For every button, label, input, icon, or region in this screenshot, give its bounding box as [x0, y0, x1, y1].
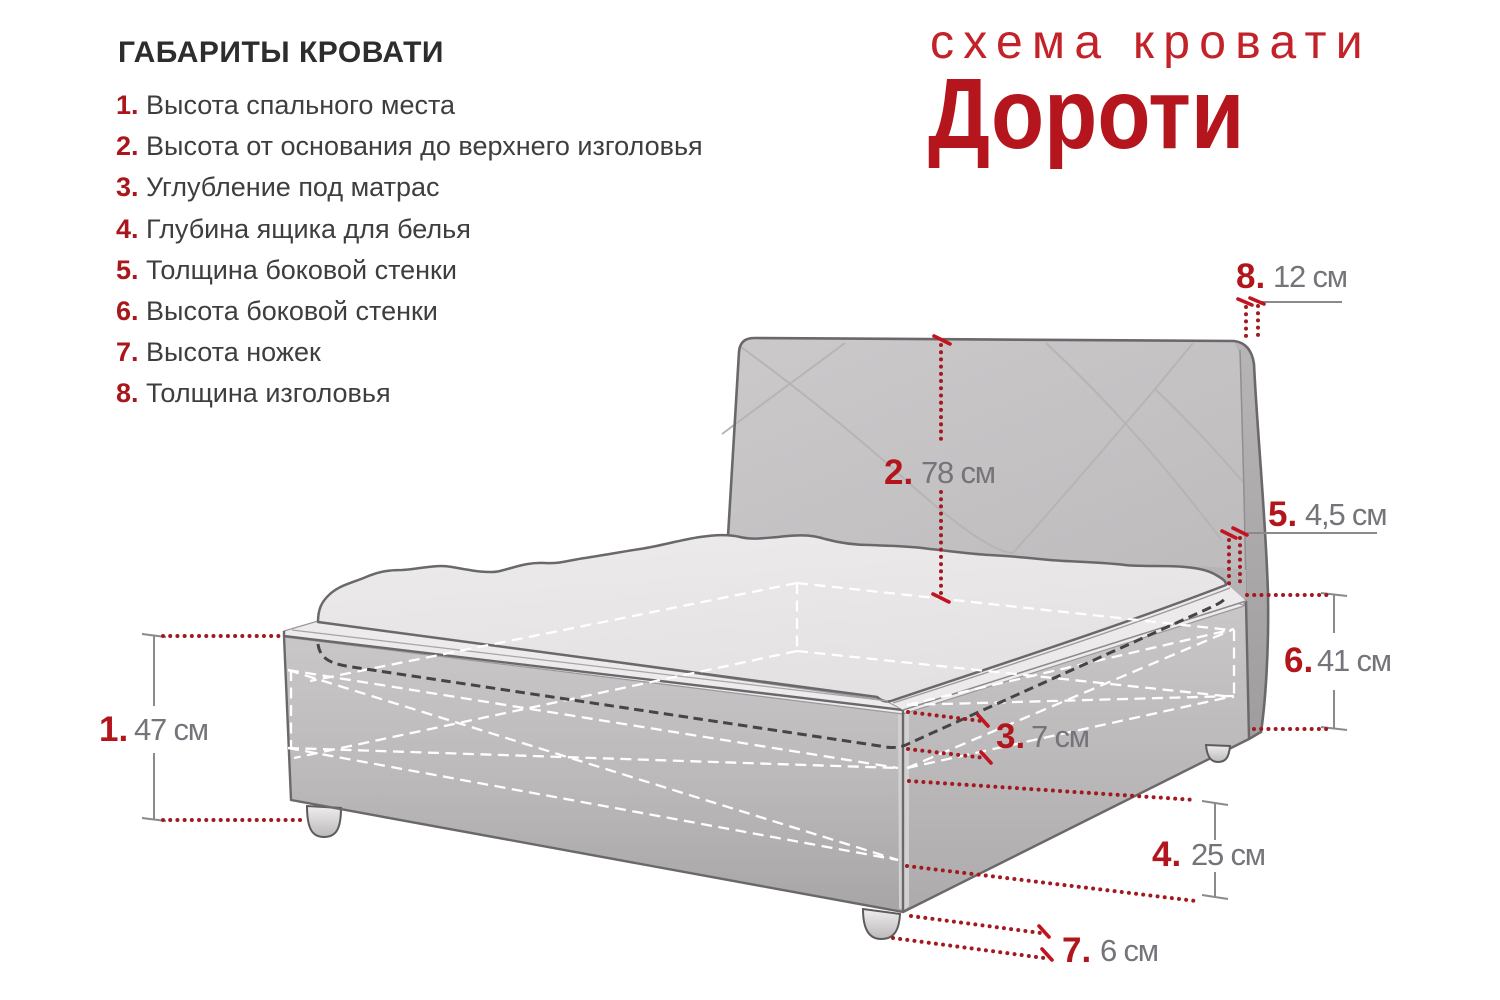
svg-text:3.: 3.: [996, 717, 1025, 756]
svg-text:78 см: 78 см: [921, 455, 995, 490]
svg-text:25 см: 25 см: [1191, 837, 1265, 872]
svg-text:7.: 7.: [1062, 931, 1091, 970]
svg-text:12 см: 12 см: [1273, 259, 1347, 294]
svg-text:4.: 4.: [1152, 835, 1181, 874]
svg-text:1.: 1.: [99, 710, 128, 749]
svg-text:7 см: 7 см: [1031, 719, 1089, 754]
svg-text:6.: 6.: [1284, 641, 1313, 680]
svg-text:4,5 см: 4,5 см: [1305, 497, 1386, 532]
svg-text:5.: 5.: [1268, 495, 1297, 534]
svg-text:41 см: 41 см: [1317, 643, 1391, 678]
svg-text:6 см: 6 см: [1100, 933, 1158, 968]
svg-text:47 см: 47 см: [134, 712, 208, 747]
svg-text:8.: 8.: [1236, 257, 1265, 296]
svg-text:2.: 2.: [884, 453, 913, 492]
